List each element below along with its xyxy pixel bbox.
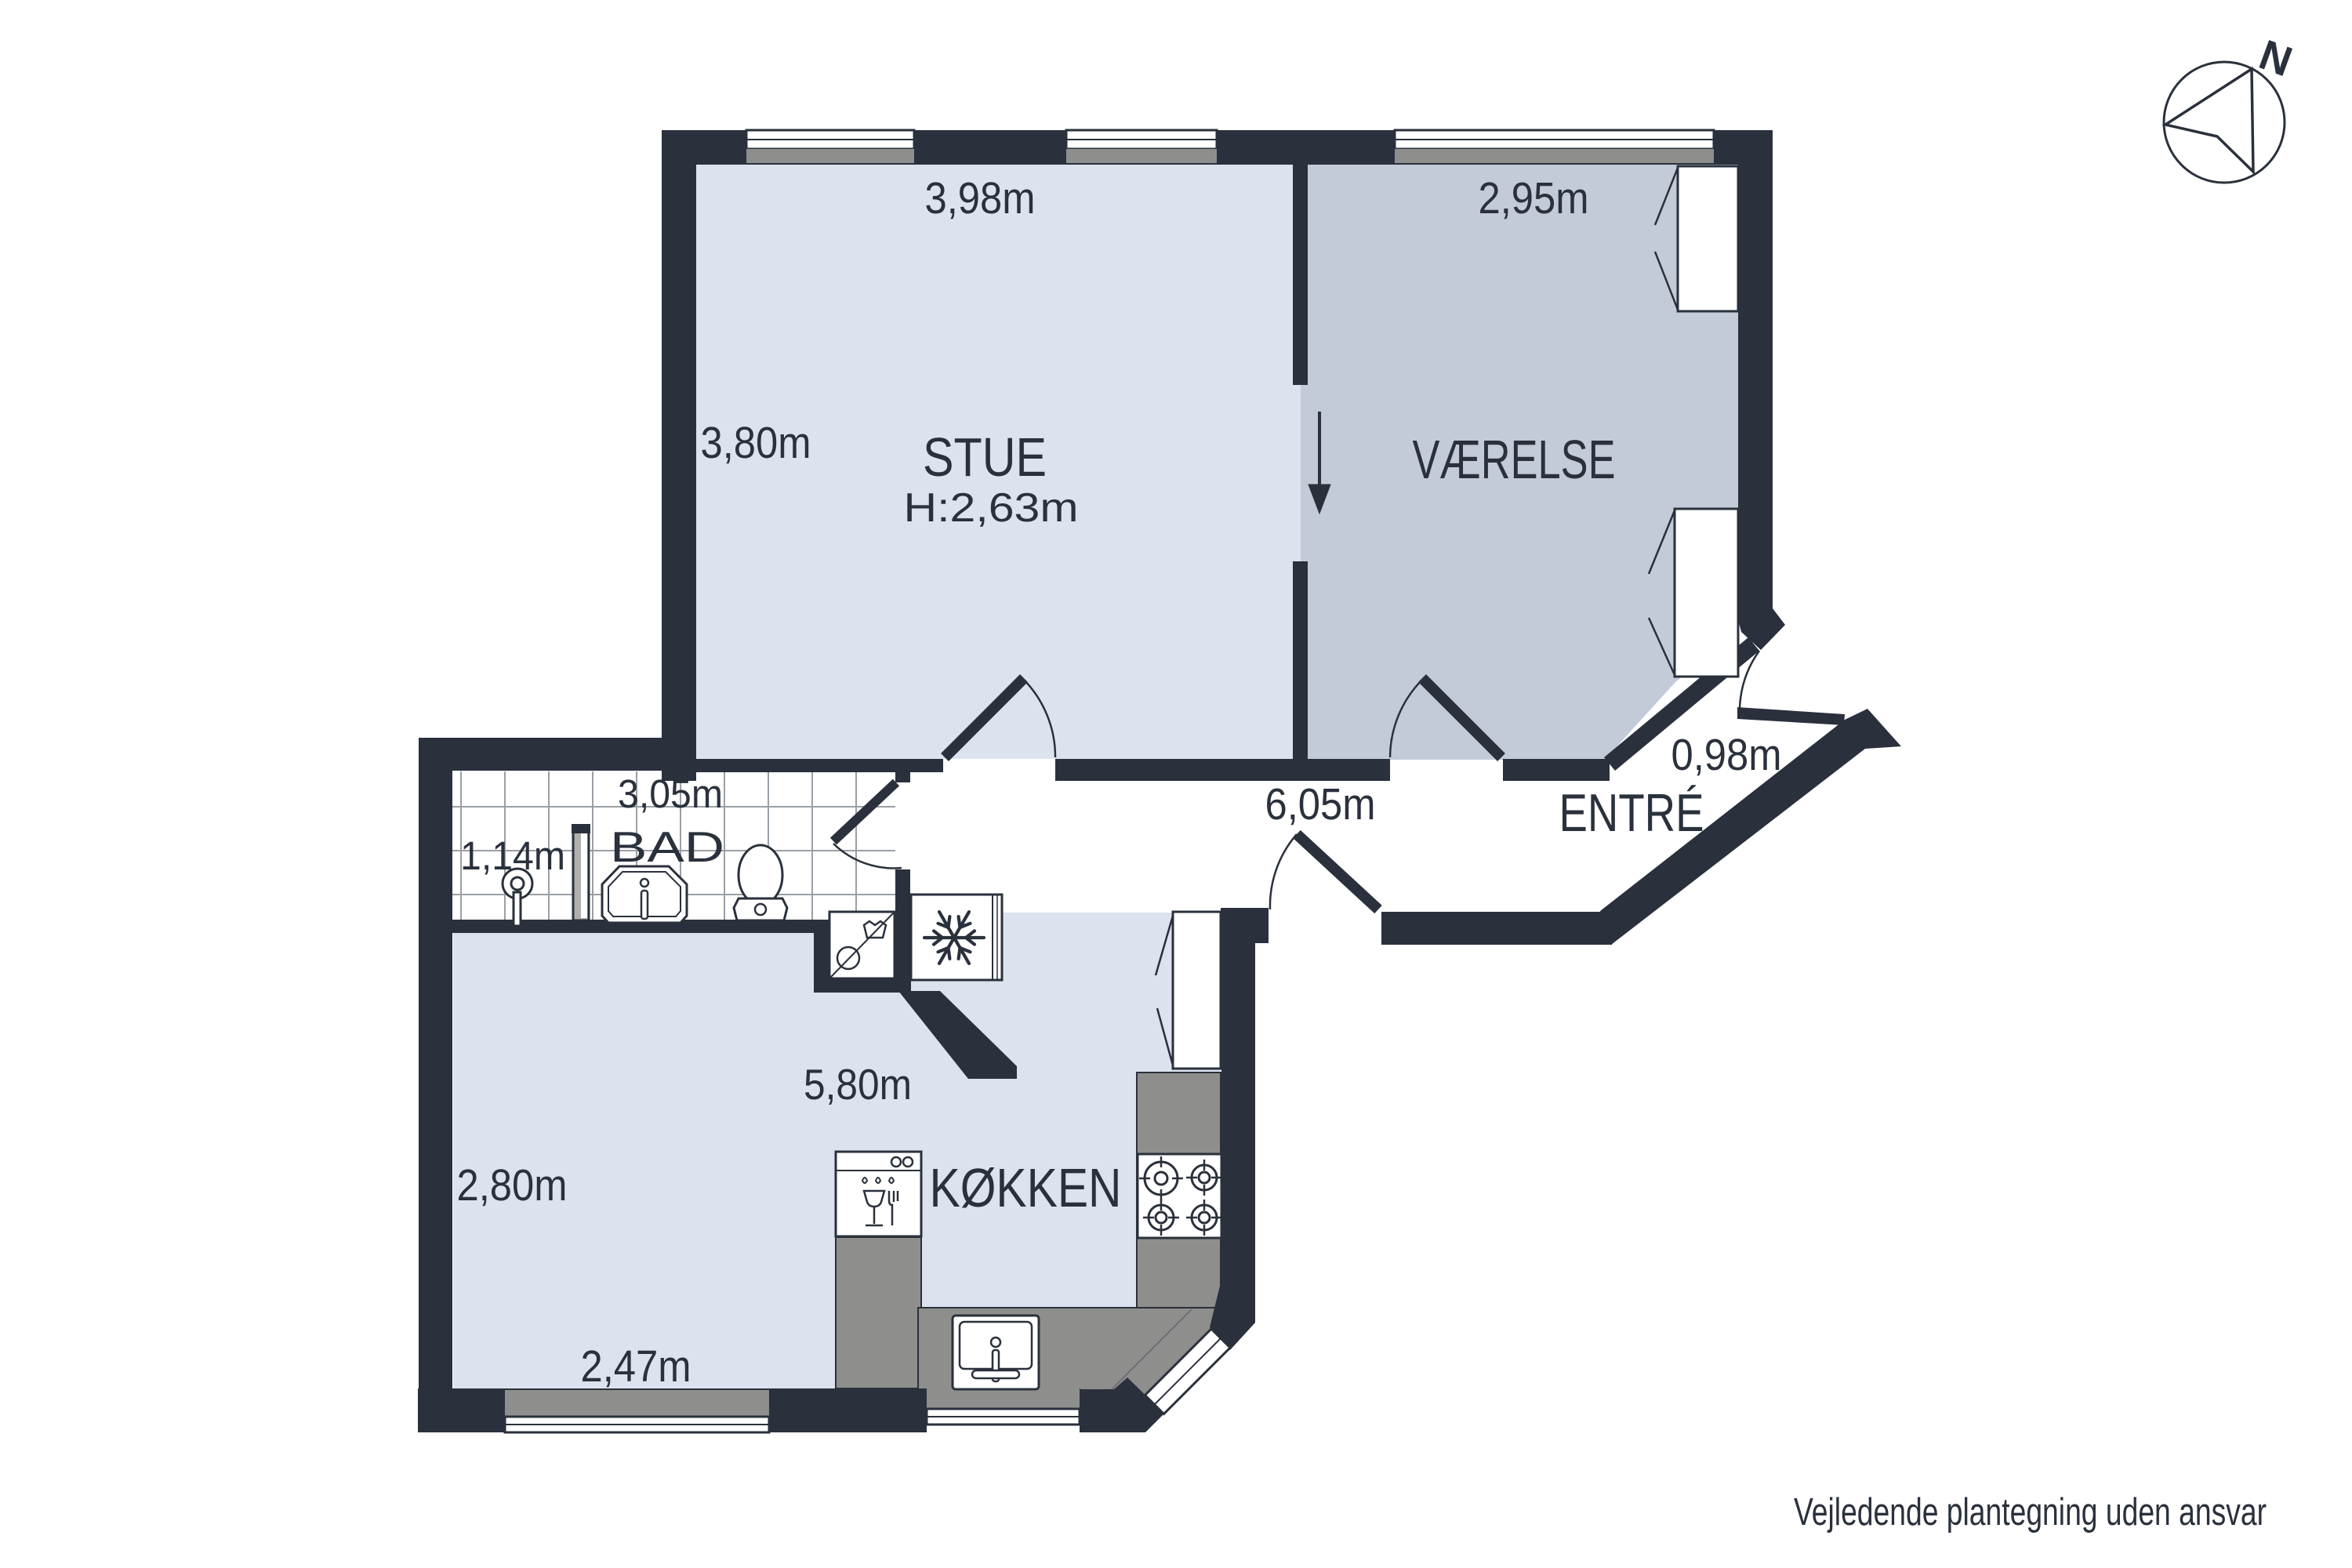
svg-text:BAD: BAD: [610, 822, 724, 871]
svg-text:ENTRÉ: ENTRÉ: [1559, 783, 1704, 843]
svg-text:0,98m: 0,98m: [1671, 730, 1782, 780]
svg-text:6,05m: 6,05m: [1265, 779, 1376, 829]
svg-text:KØKKEN: KØKKEN: [930, 1157, 1122, 1218]
svg-text:1,14m: 1,14m: [460, 833, 565, 878]
svg-text:2,95m: 2,95m: [1479, 173, 1589, 223]
svg-text:3,80m: 3,80m: [701, 418, 811, 468]
svg-text:H:2,63m: H:2,63m: [904, 485, 1079, 531]
svg-text:3,98m: 3,98m: [925, 173, 1036, 223]
svg-text:2,47m: 2,47m: [581, 1341, 691, 1392]
svg-text:3,05m: 3,05m: [618, 771, 723, 816]
svg-text:5,80m: 5,80m: [804, 1060, 912, 1109]
svg-text:VÆRELSE: VÆRELSE: [1413, 429, 1616, 490]
svg-text:2,80m: 2,80m: [457, 1160, 568, 1210]
svg-text:Vejledende plantegning uden an: Vejledende plantegning uden ansvar: [1794, 1491, 2267, 1534]
svg-text:STUE: STUE: [923, 426, 1047, 488]
